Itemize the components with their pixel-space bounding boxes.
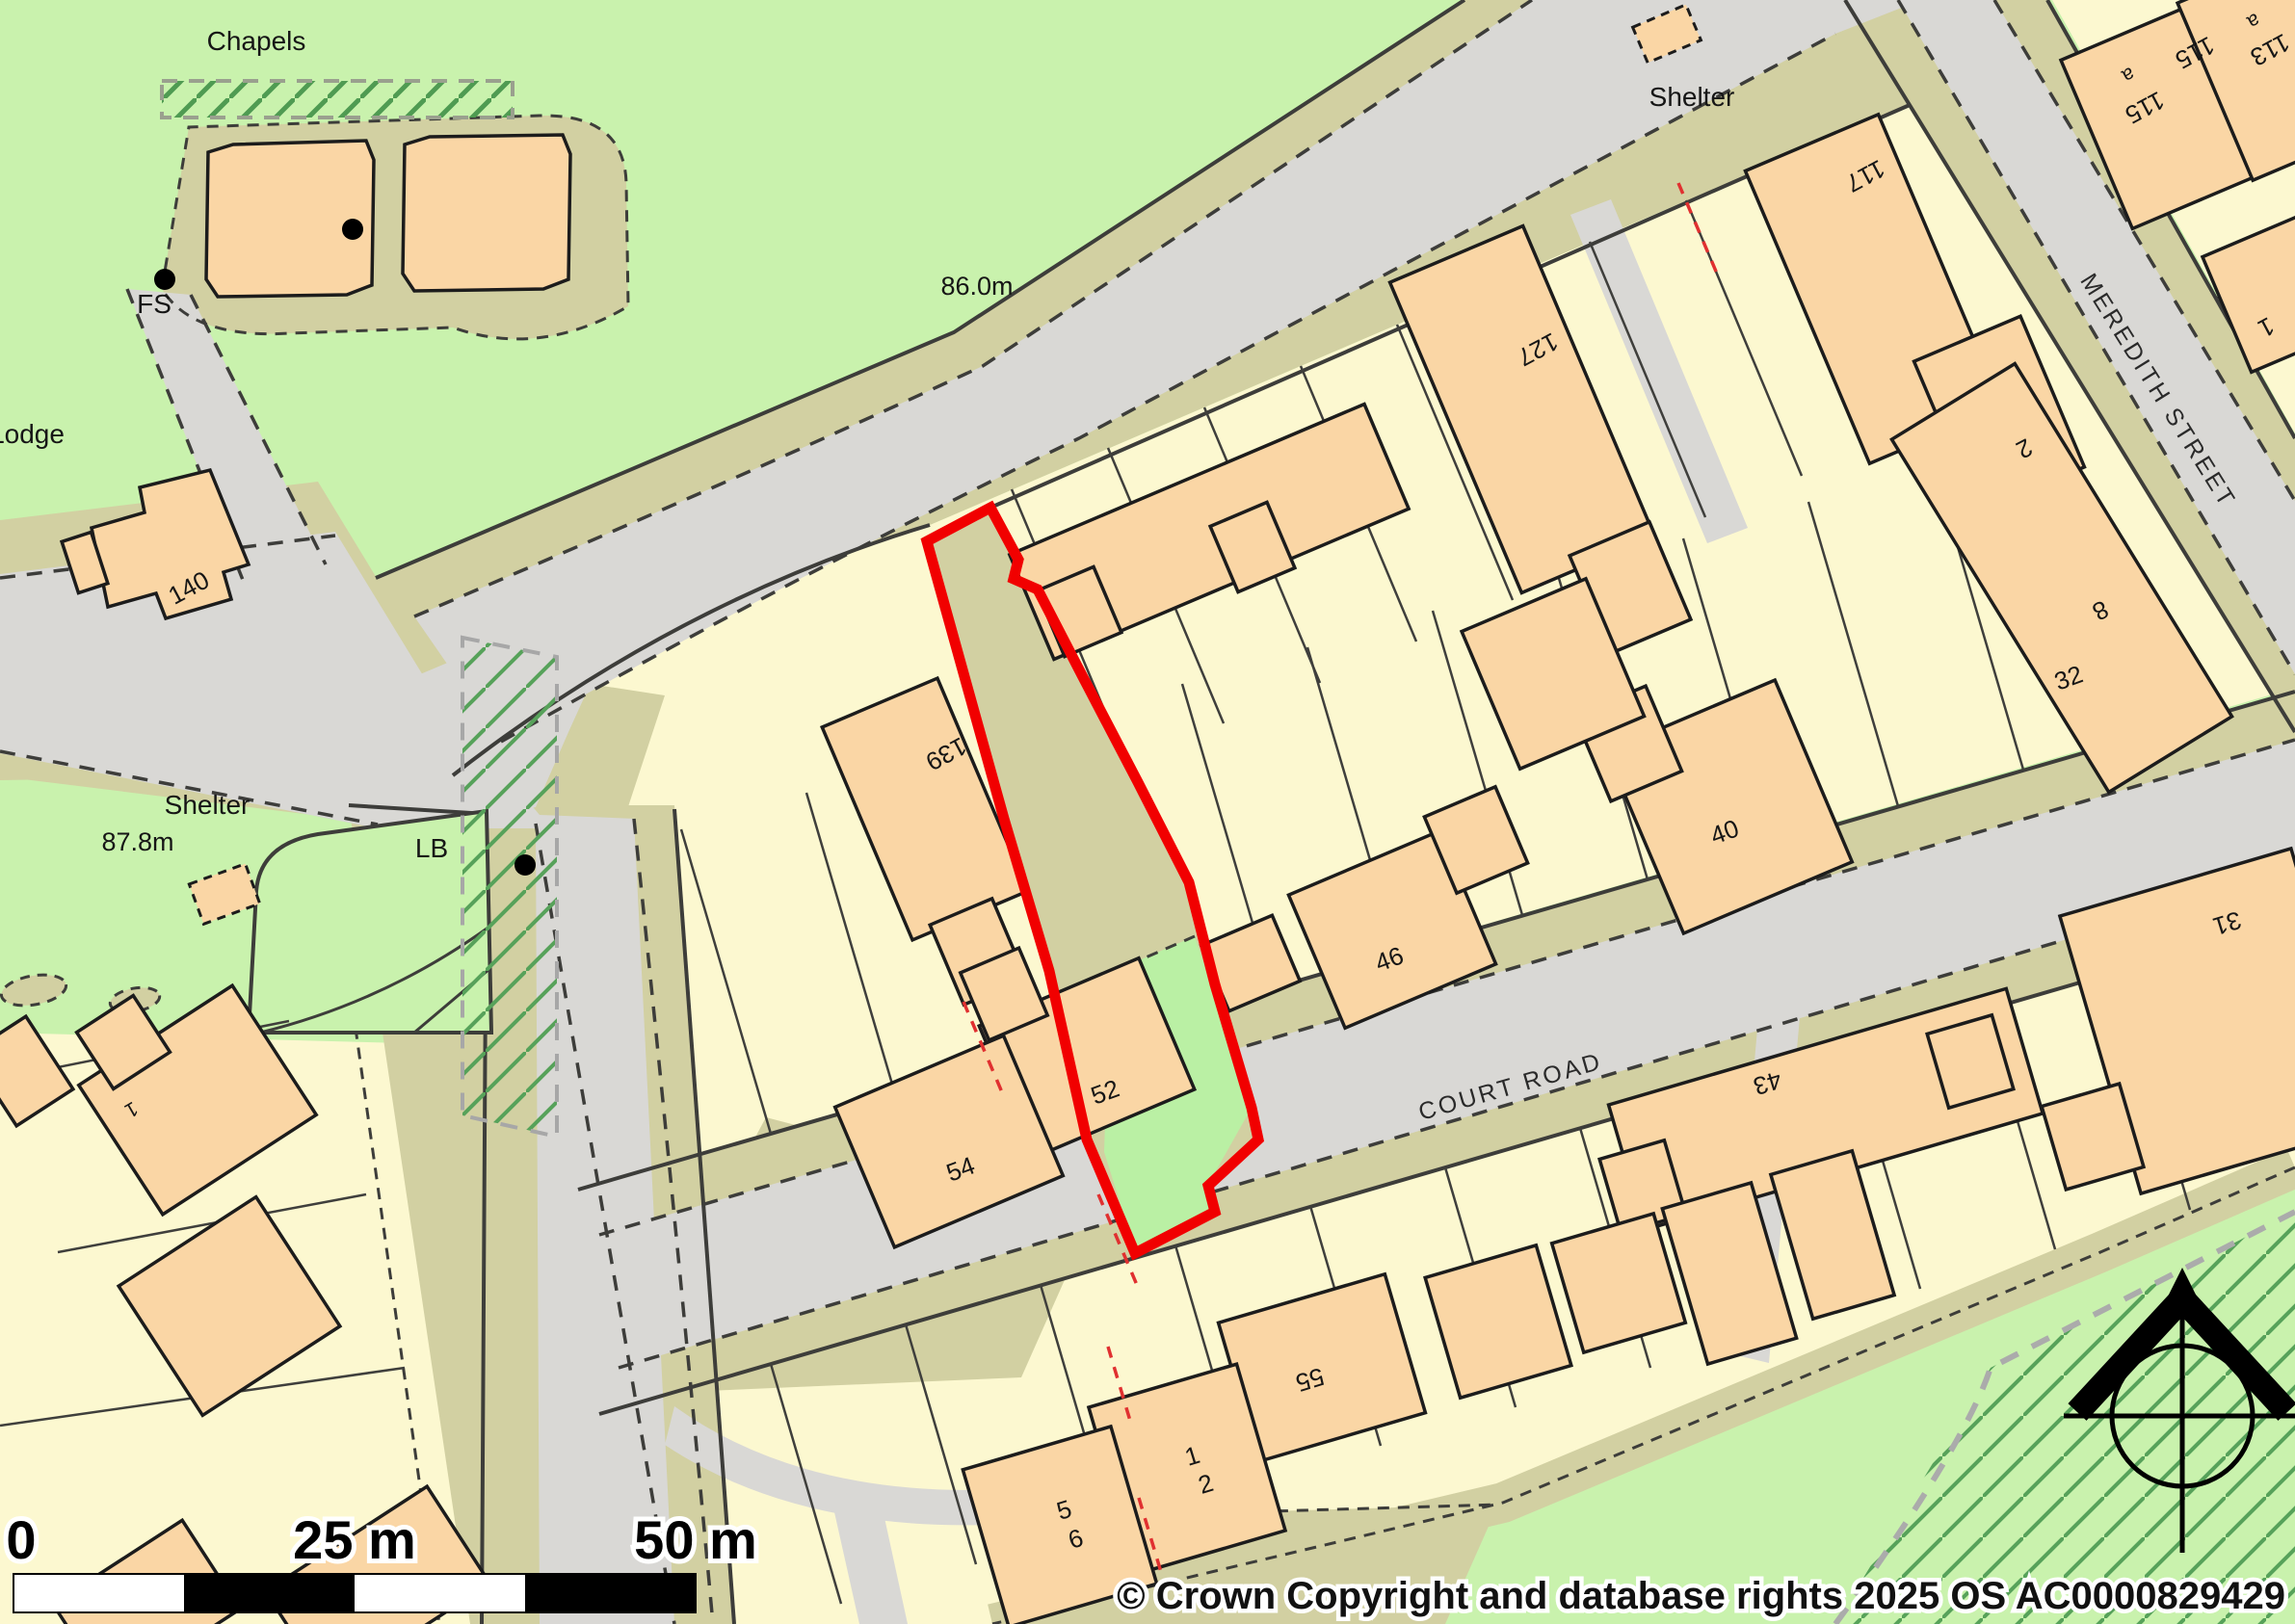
fs-dot xyxy=(154,269,175,290)
lb-green xyxy=(249,811,491,1033)
garden-hatch-strip xyxy=(462,638,557,1137)
scale-tick-0: 0 xyxy=(6,1509,36,1570)
chapels-hatch-strip xyxy=(162,81,513,118)
chapel-east xyxy=(403,135,570,291)
chapels-dot xyxy=(342,219,363,240)
map-canvas: ChapelsFSLodge140Shelter87.8mLB86.0mShel… xyxy=(0,0,2295,1624)
map-label: Chapels xyxy=(207,26,306,56)
copyright-notice: © Crown Copyright and database rights 20… xyxy=(1117,1575,2285,1617)
map-label: Lodge xyxy=(0,419,65,449)
lb-dot xyxy=(514,854,536,876)
map-label: 87.8m xyxy=(101,827,173,856)
map-label: LB xyxy=(415,833,448,863)
chapel-west xyxy=(206,141,374,297)
map-label: Shelter xyxy=(165,790,251,820)
scale-tick-50: 50 m xyxy=(634,1509,757,1570)
map-label: Shelter xyxy=(1649,82,1735,112)
map-label: 86.0m xyxy=(940,272,1013,301)
map-label: FS xyxy=(137,289,171,319)
scale-tick-25: 25 m xyxy=(293,1509,416,1570)
map-screenshot: ChapelsFSLodge140Shelter87.8mLB86.0mShel… xyxy=(0,0,2295,1624)
